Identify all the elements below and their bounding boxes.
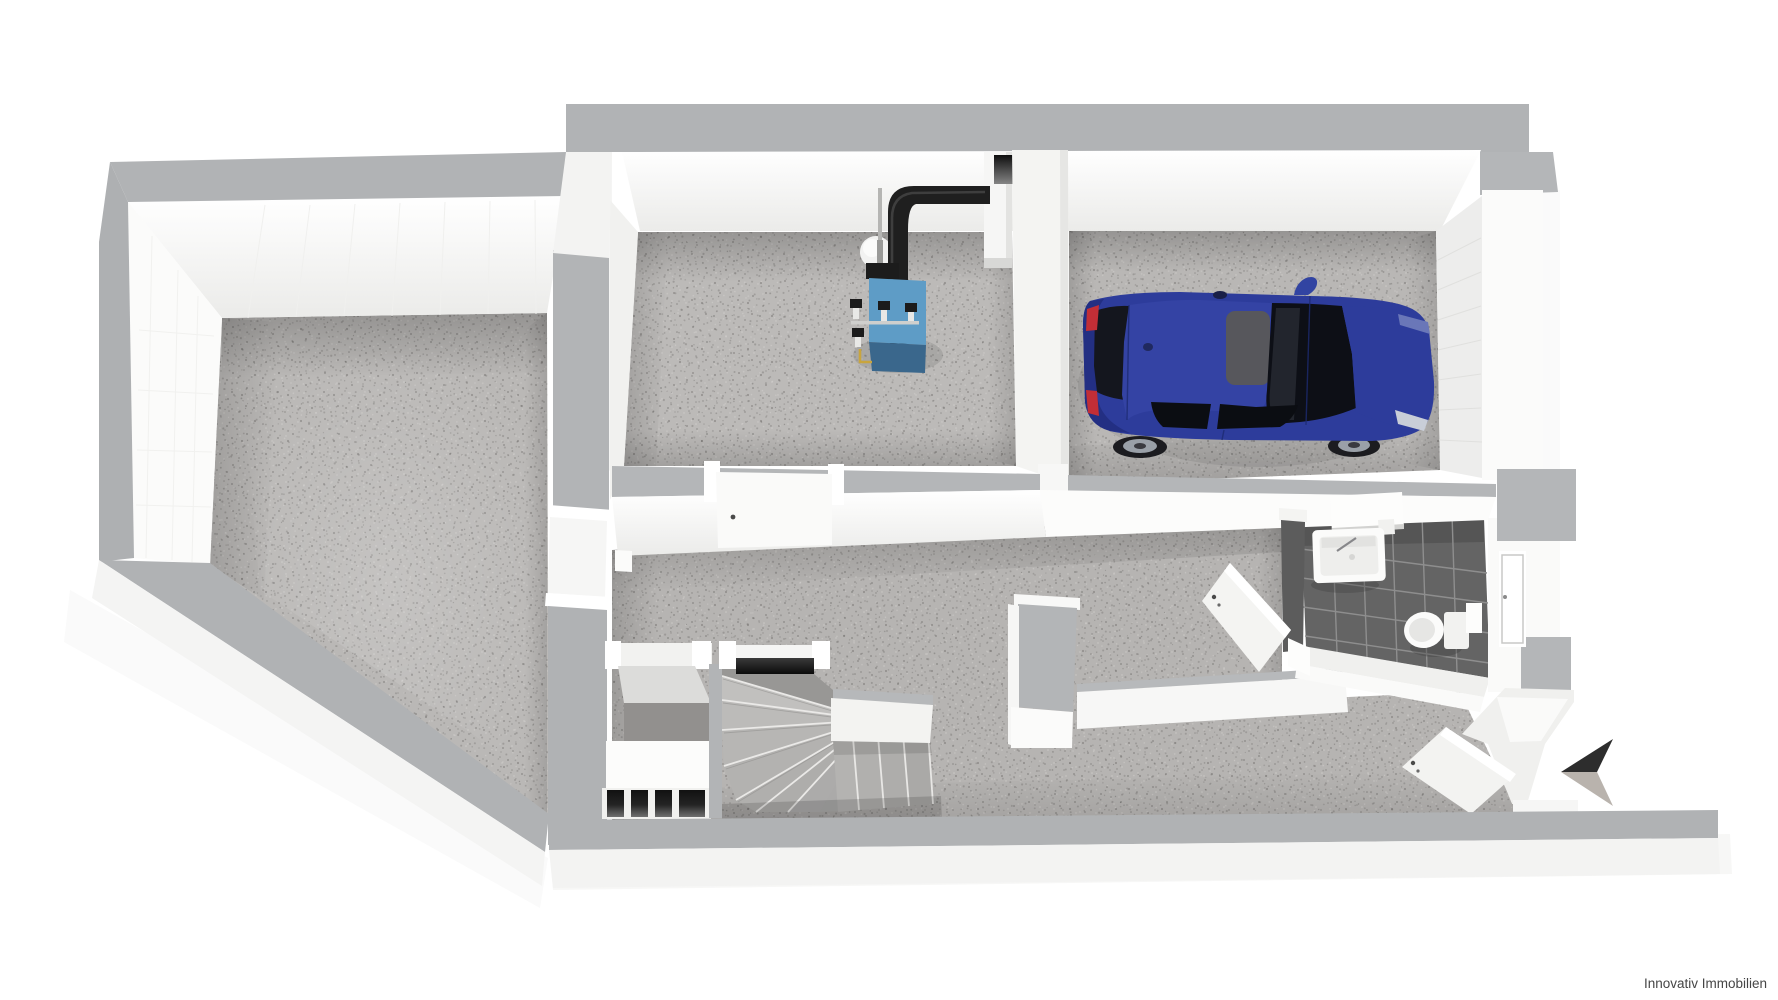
svg-text:Innovativ Immobilien: Innovativ Immobilien — [1644, 976, 1767, 991]
